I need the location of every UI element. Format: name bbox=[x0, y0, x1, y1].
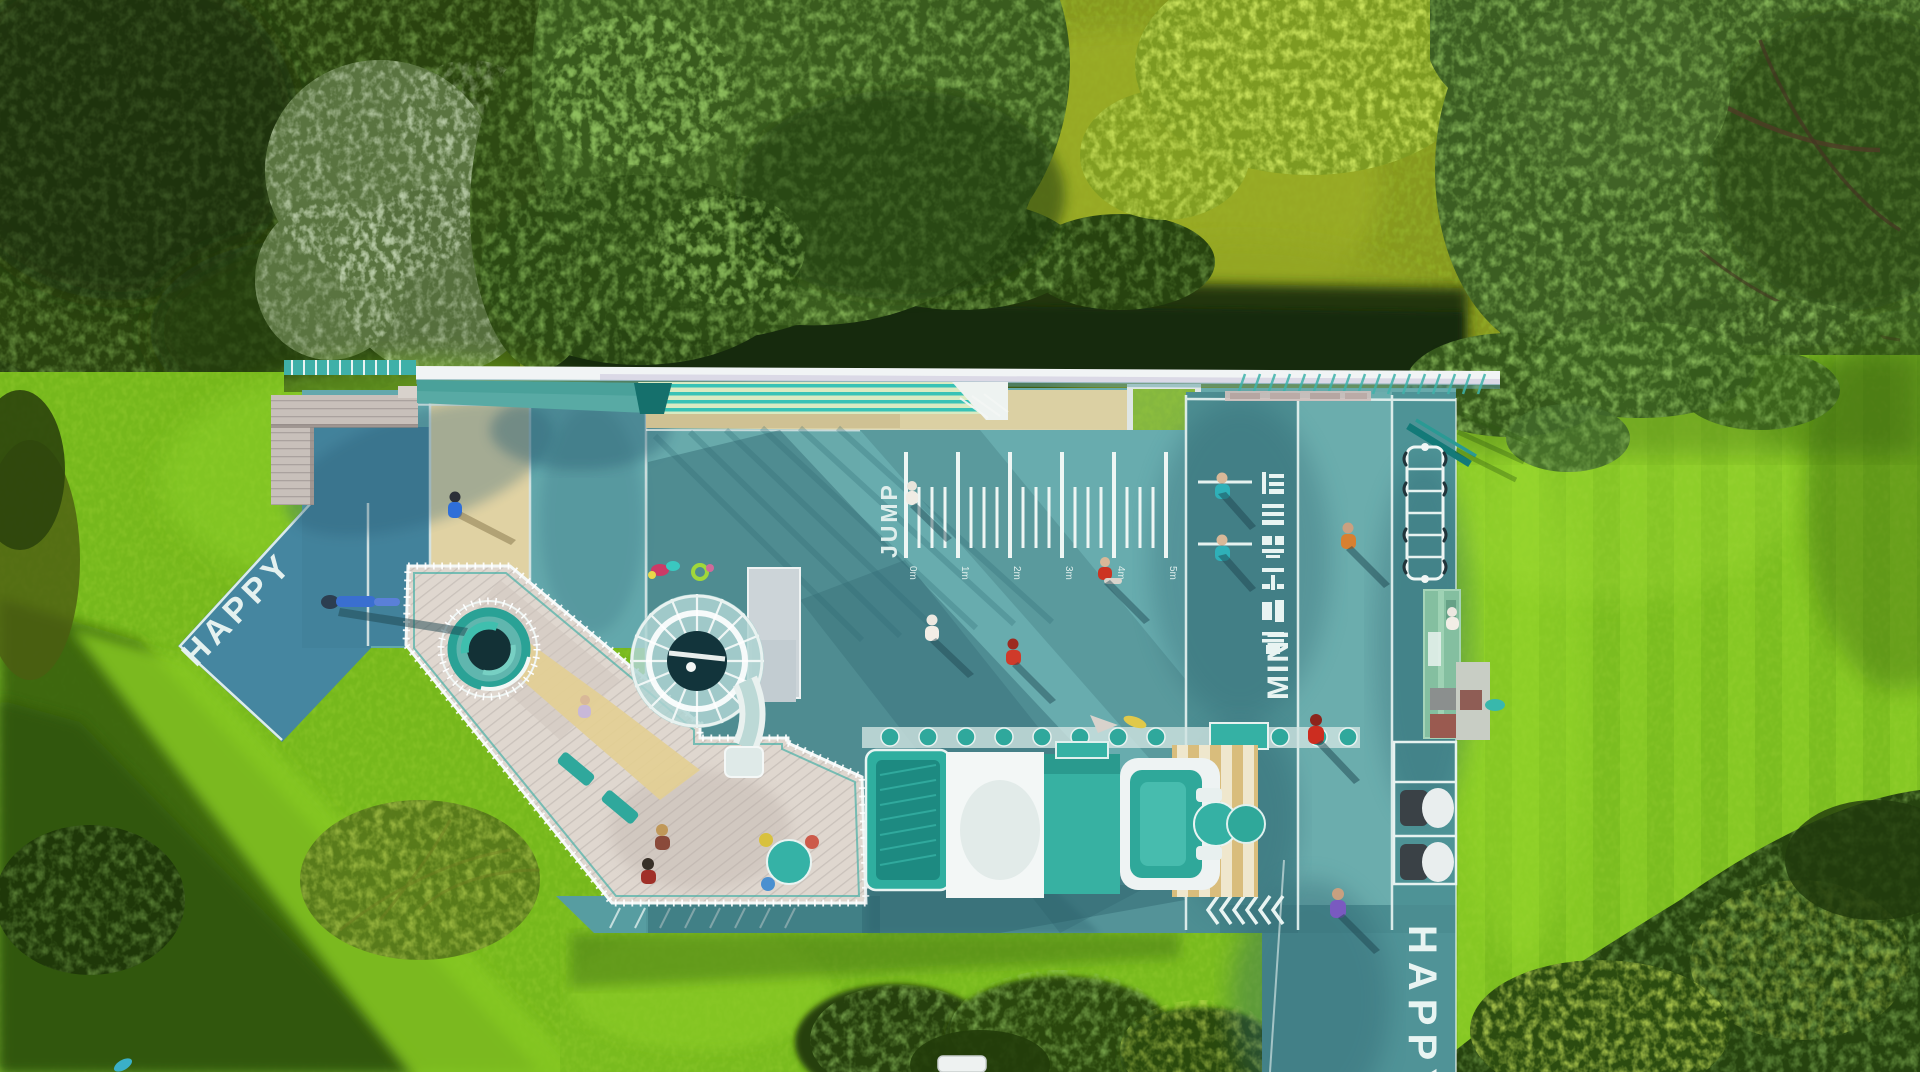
svg-text:4m: 4m bbox=[1115, 566, 1126, 580]
svg-text:2m: 2m bbox=[1011, 566, 1022, 580]
svg-text:1m: 1m bbox=[959, 566, 970, 580]
svg-text:HAPPY: HAPPY bbox=[1400, 925, 1444, 1072]
svg-text:JUMP: JUMP bbox=[876, 482, 902, 558]
svg-text:5m: 5m bbox=[1167, 566, 1178, 580]
svg-text:3m: 3m bbox=[1063, 566, 1074, 580]
svg-text:0m: 0m bbox=[907, 566, 918, 580]
